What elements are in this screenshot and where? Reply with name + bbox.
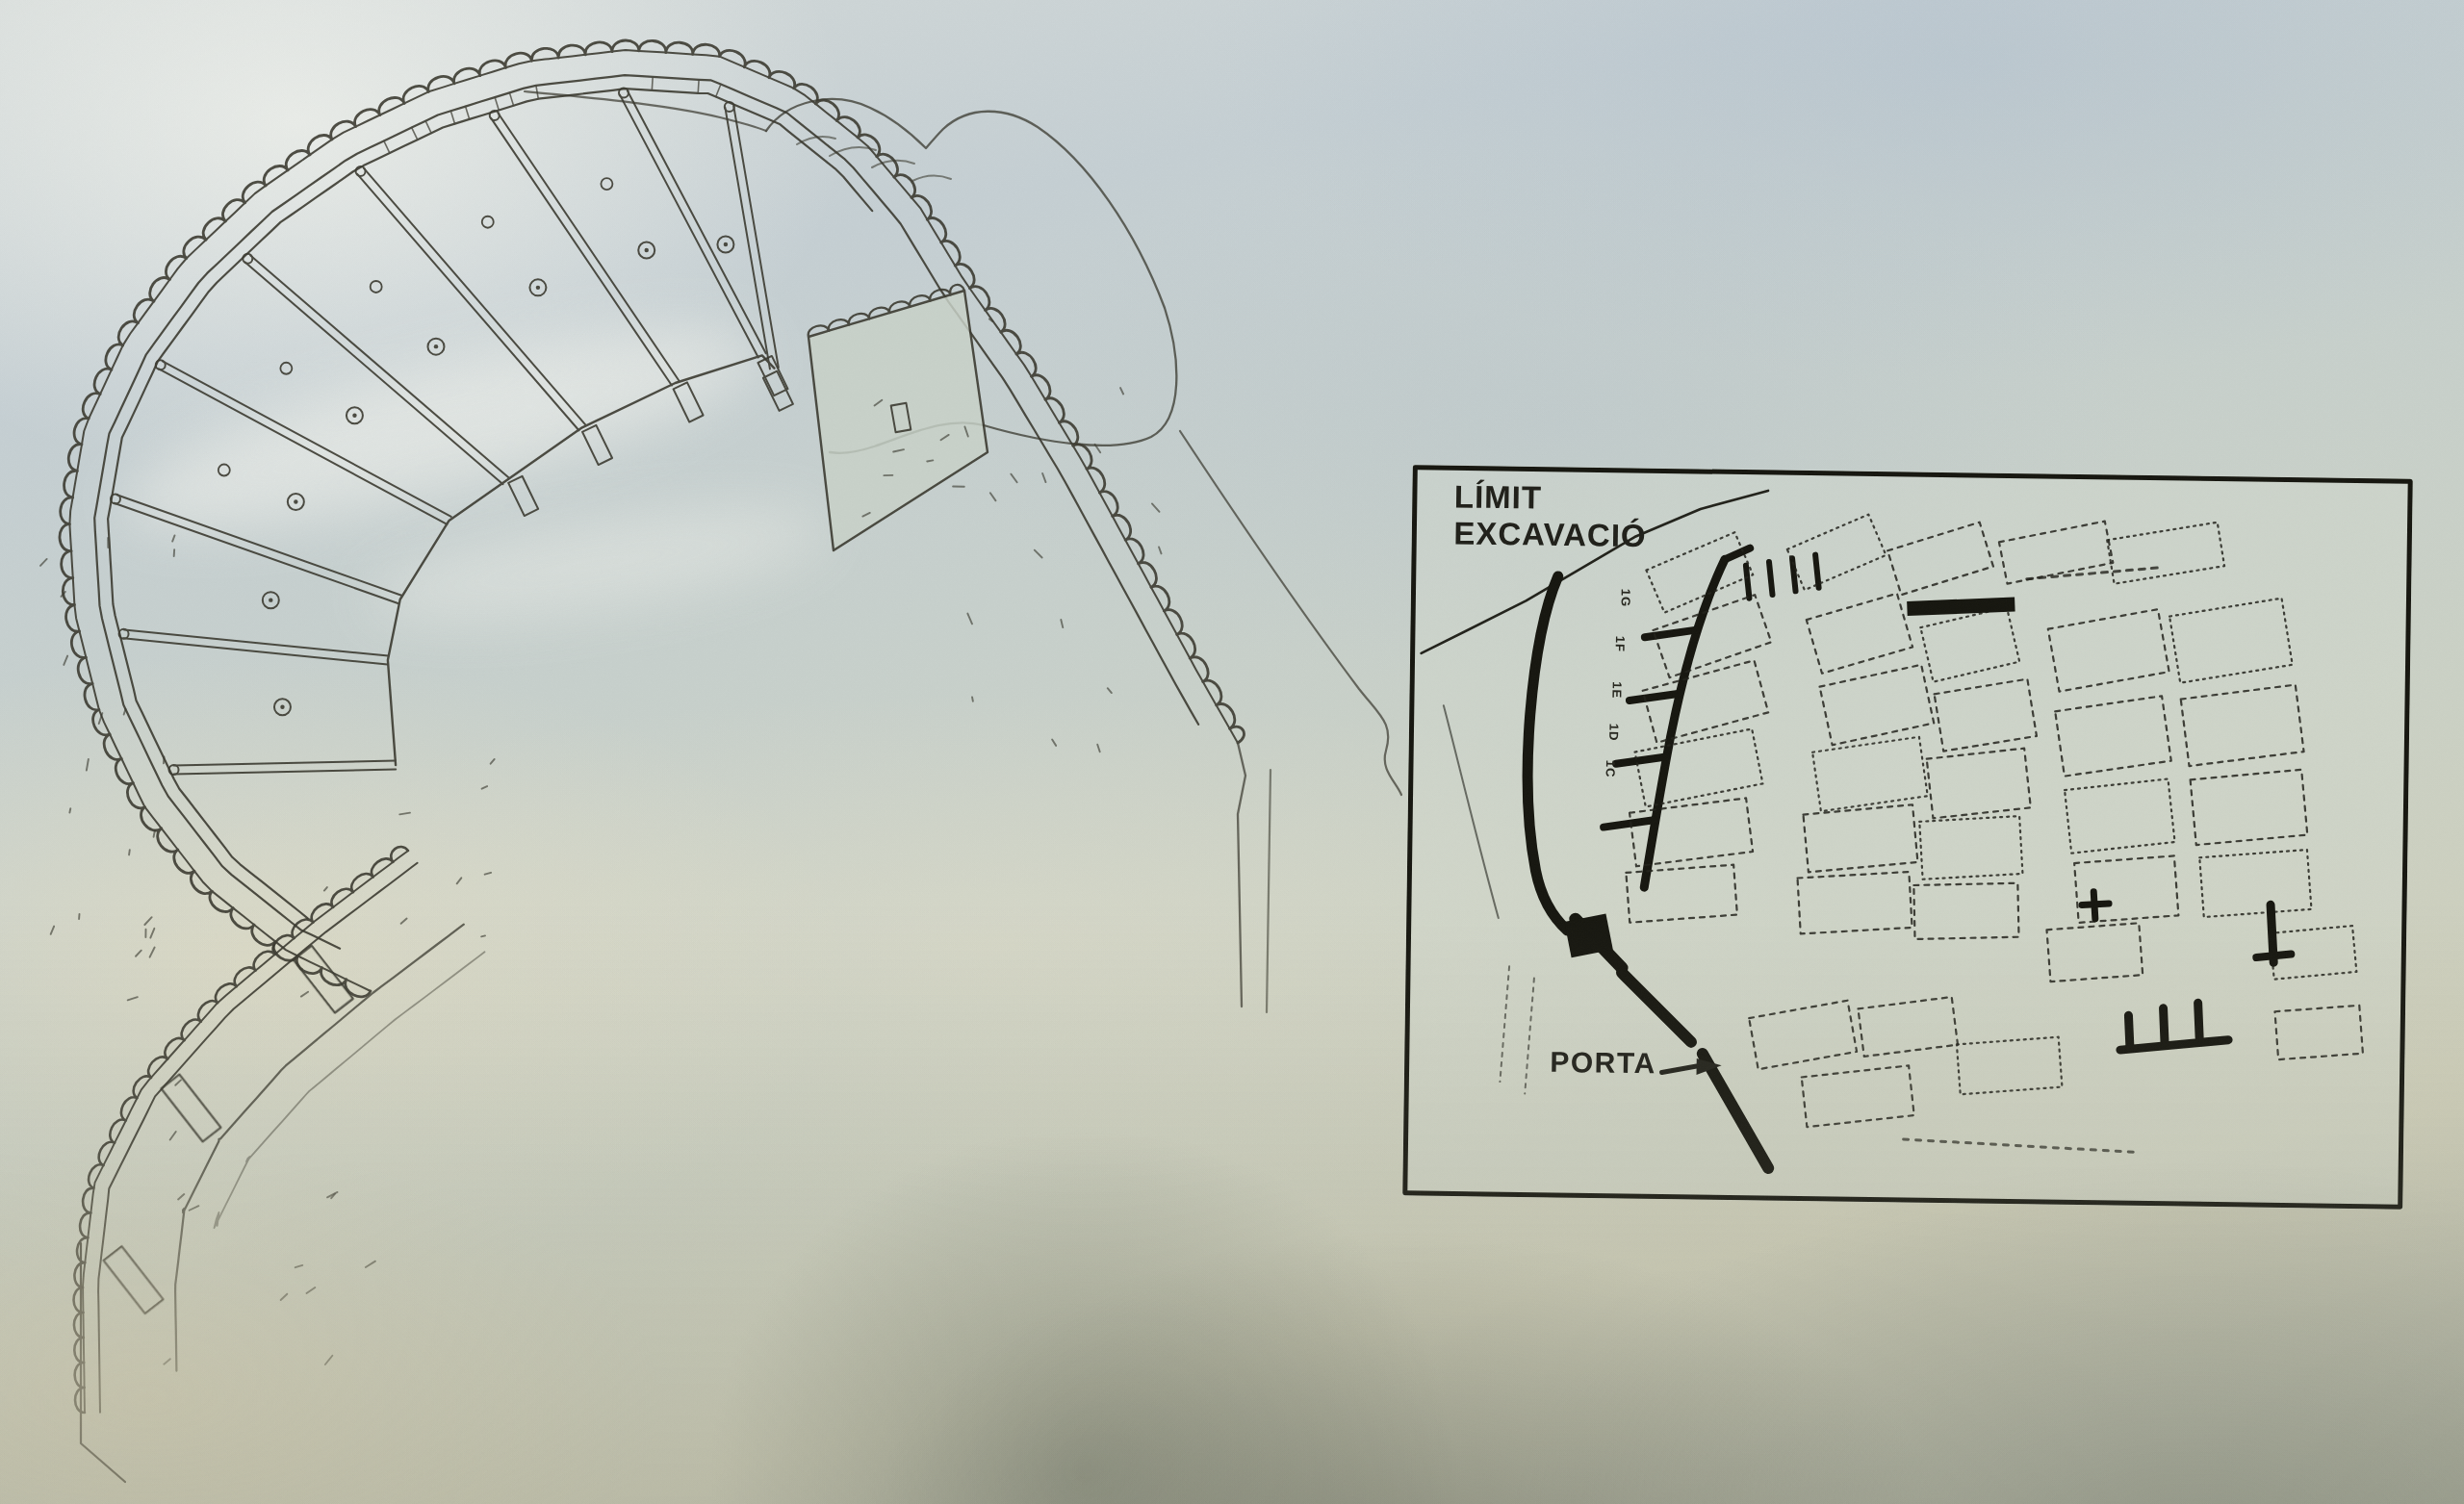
- excavation-map-inset: LÍMIT EXCAVACIÓ PORTA 1G1F1E1D1C: [1402, 465, 2414, 1210]
- watchtower: [808, 285, 988, 550]
- room-label: 1G: [1618, 589, 1632, 608]
- lower-rampart: [74, 847, 485, 1482]
- casemate-rooms: [111, 89, 779, 775]
- wall-openings: [104, 356, 793, 1313]
- stipple-texture: [40, 319, 1162, 1364]
- room-labels: 1G1F1E1D1C: [1402, 465, 2414, 1210]
- room-label: 1C: [1604, 760, 1618, 778]
- room-label: 1E: [1609, 681, 1624, 699]
- room-label: 1D: [1606, 724, 1621, 742]
- room-label: 1F: [1613, 636, 1628, 652]
- parapet-walkway: [94, 75, 1198, 949]
- information-panel-photo: LÍMIT EXCAVACIÓ PORTA 1G1F1E1D1C: [0, 0, 2464, 1504]
